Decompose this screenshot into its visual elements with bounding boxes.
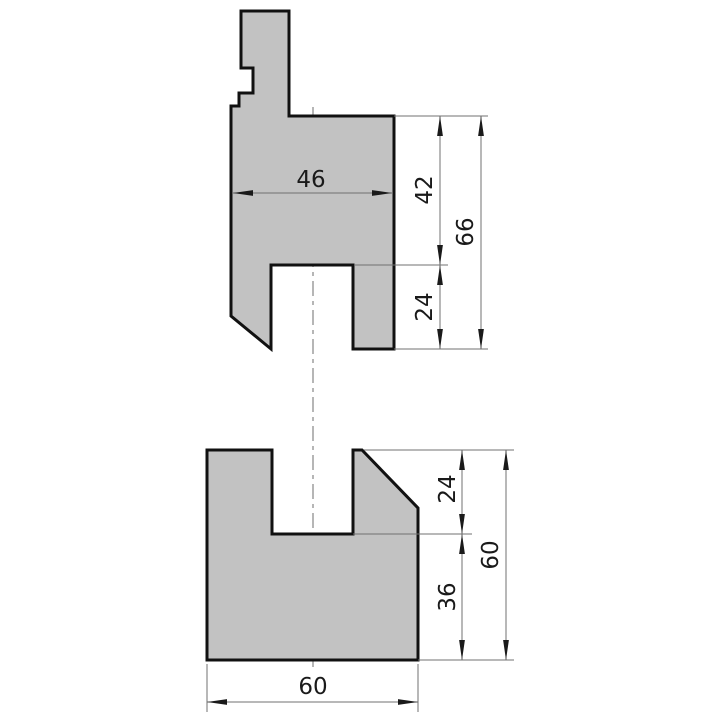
dim-label-punch-upper-height: 42 bbox=[412, 175, 438, 204]
drawing-page: 46 42 66 24 24 60 36 60 bbox=[0, 0, 720, 720]
dim-label-punch-width: 46 bbox=[296, 167, 325, 193]
dim-label-die-slot-depth: 24 bbox=[435, 474, 461, 503]
dim-label-punch-groove-height: 24 bbox=[412, 292, 438, 321]
punch-view: 46 42 66 24 bbox=[231, 11, 488, 349]
dim-label-die-base-height: 36 bbox=[435, 582, 461, 611]
die-shape bbox=[207, 450, 418, 660]
dim-label-die-width: 60 bbox=[298, 674, 327, 700]
dim-label-punch-total-height: 66 bbox=[453, 217, 479, 246]
technical-drawing: 46 42 66 24 24 60 36 60 bbox=[0, 0, 720, 720]
dim-label-die-total-height: 60 bbox=[478, 540, 504, 569]
die-view: 24 60 36 60 bbox=[207, 450, 514, 712]
